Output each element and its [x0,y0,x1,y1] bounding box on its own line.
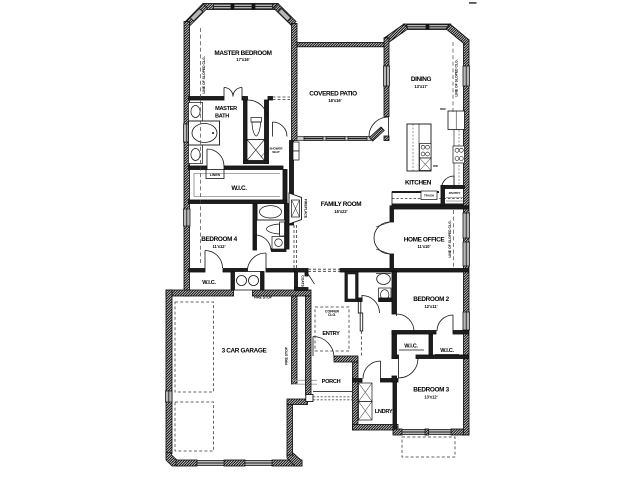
svg-text:12'x11': 12'x11' [424,304,437,309]
svg-text:CLG.: CLG. [328,313,336,317]
svg-text:11'x10': 11'x10' [417,244,430,249]
svg-text:FIRE STOP: FIRE STOP [254,296,273,300]
svg-text:FIRE STOP: FIRE STOP [285,346,289,365]
svg-text:REF.: REF. [440,107,446,111]
svg-text:BATH: BATH [215,114,229,120]
svg-text:BEDROOM 2: BEDROOM 2 [413,296,449,303]
svg-text:LNDRY: LNDRY [375,409,393,415]
svg-text:3 CAR GARAGE: 3 CAR GARAGE [222,348,268,355]
svg-text:W.I.C.: W.I.C. [231,185,247,192]
svg-text:COATS: COATS [301,275,305,287]
svg-text:PANTRY: PANTRY [449,191,461,195]
svg-text:KITCHEN: KITCHEN [405,180,432,187]
svg-text:TRASH: TRASH [424,193,434,197]
svg-text:LINE OF SLOPED CLG.: LINE OF SLOPED CLG. [448,220,452,257]
svg-text:ENTRY: ENTRY [322,331,340,337]
svg-text:FAMILY ROOM: FAMILY ROOM [321,201,362,208]
svg-text:13'x12': 13'x12' [424,395,437,400]
svg-text:11'x12': 11'x12' [212,244,225,249]
svg-text:W.I.C.: W.I.C. [404,344,418,350]
svg-text:W.I.C.: W.I.C. [440,348,454,354]
svg-text:PORCH: PORCH [322,379,341,385]
svg-text:FIREPLACE: FIREPLACE [304,199,308,219]
svg-text:COVERED PATIO: COVERED PATIO [309,91,357,98]
svg-text:DINING: DINING [411,76,432,83]
svg-text:17'x16': 17'x16' [236,57,249,62]
svg-text:W.I.C.: W.I.C. [202,280,216,286]
svg-text:DW: DW [433,164,438,168]
svg-text:MASTER BEDROOM: MASTER BEDROOM [214,50,271,57]
svg-text:SEAT: SEAT [272,150,280,154]
svg-text:BEDROOM 3: BEDROOM 3 [413,387,449,394]
svg-text:MASTER: MASTER [215,106,237,112]
svg-text:HOME OFFICE: HOME OFFICE [404,237,446,244]
svg-text:16'x22': 16'x22' [334,209,347,214]
svg-text:LINE OF SLOPED CLG.: LINE OF SLOPED CLG. [202,56,206,93]
svg-text:18'x16': 18'x16' [328,98,341,103]
svg-text:BEDROOM 4: BEDROOM 4 [201,236,237,243]
svg-text:LINE OF SLOPED CLG.: LINE OF SLOPED CLG. [455,59,459,96]
svg-text:13'x17': 13'x17' [414,84,427,89]
